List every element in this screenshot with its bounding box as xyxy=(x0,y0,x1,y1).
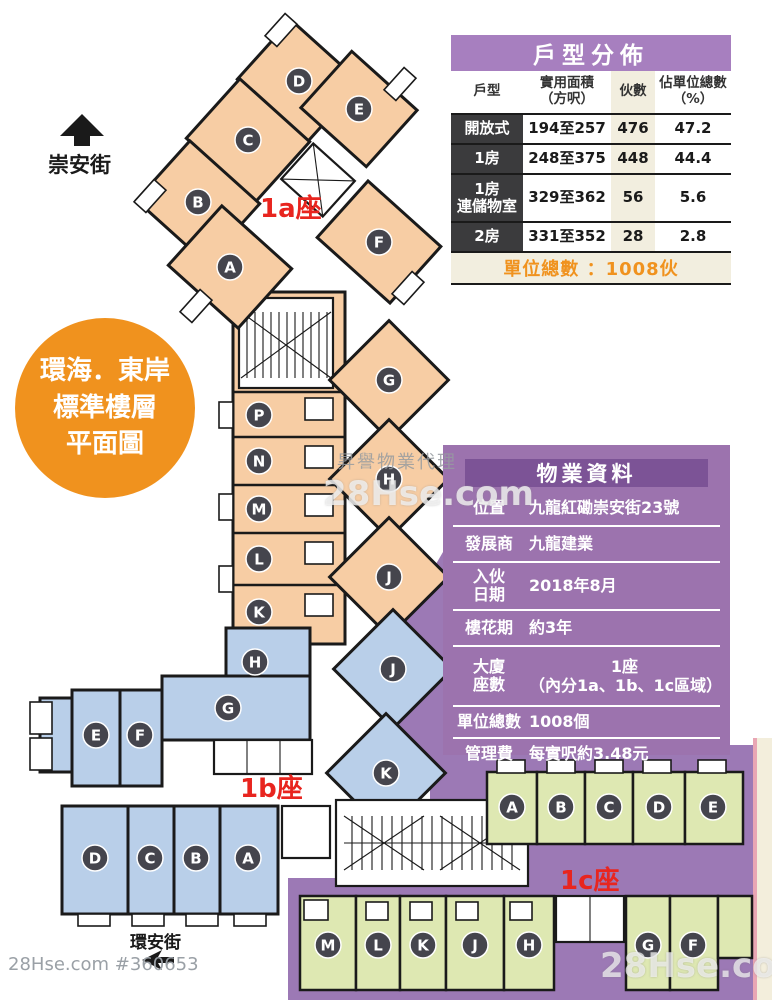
unit-table-header: 戶型 實用面積 （方呎） 伙數 佔單位總數 （%） xyxy=(451,71,731,113)
street-bottom-label: 環安街 xyxy=(130,932,181,953)
svg-text:B: B xyxy=(192,194,203,212)
svg-text:B: B xyxy=(555,799,566,817)
unit-distribution-table: 戶型分佈 戶型 實用面積 （方呎） 伙數 佔單位總數 （%） 開放式 194至2… xyxy=(451,35,731,285)
unit-marker: L xyxy=(246,546,272,572)
svg-text:J: J xyxy=(471,937,478,955)
unit-table-total: 單位總數 ：1008伙 xyxy=(451,251,731,285)
unit-marker: D xyxy=(286,68,312,94)
wing-1b-label: 1b座 xyxy=(240,773,303,804)
unit-marker: F xyxy=(127,722,153,748)
property-row: 單位總數 1008個 xyxy=(453,707,720,739)
svg-text:M: M xyxy=(252,501,267,519)
unit-marker: G xyxy=(376,367,402,393)
unit-marker: B xyxy=(185,189,211,215)
col-header-area: 實用面積 （方呎） xyxy=(523,71,611,113)
unit-marker: L xyxy=(365,932,391,958)
wing-1c-label: 1c座 xyxy=(560,865,620,896)
property-row: 發展商 九龍建業 xyxy=(453,527,720,563)
lift-bank-1c xyxy=(556,896,624,942)
svg-text:J: J xyxy=(389,661,396,679)
svg-text:C: C xyxy=(242,132,253,150)
unit-marker: H xyxy=(242,649,268,675)
svg-text:K: K xyxy=(253,604,266,622)
table-row: 開放式 194至257 476 47.2 xyxy=(451,113,731,143)
unit-marker: A xyxy=(499,794,525,820)
unit-marker: D xyxy=(646,794,672,820)
street-arrow-icon xyxy=(142,950,174,970)
street-bottom: 環安街 xyxy=(130,932,181,970)
property-row: 管理費 每實呎約3.48元 xyxy=(453,739,720,769)
property-row: 大廈 座數 1座 （內分1a、1b、1c區域） xyxy=(453,647,720,707)
svg-text:P: P xyxy=(254,407,265,425)
property-row: 位置 九龍紅磡崇安街23號 xyxy=(453,491,720,527)
unit-marker: C xyxy=(137,845,163,871)
svg-text:B: B xyxy=(190,850,201,868)
unit-marker: H xyxy=(516,932,542,958)
svg-text:K: K xyxy=(380,765,393,783)
svg-text:A: A xyxy=(506,799,518,817)
unit-marker: F xyxy=(680,932,706,958)
unit-marker: B xyxy=(183,845,209,871)
property-row: 樓花期 約3年 xyxy=(453,611,720,647)
unit-table-title: 戶型分佈 xyxy=(451,35,731,71)
unit-marker: N xyxy=(246,448,272,474)
svg-text:G: G xyxy=(642,937,654,955)
street-top-label: 崇安街 xyxy=(48,153,111,177)
unit-marker: C xyxy=(596,794,622,820)
unit-marker: F xyxy=(366,229,392,255)
svg-text:J: J xyxy=(385,569,392,587)
svg-text:C: C xyxy=(144,850,155,868)
svg-text:G: G xyxy=(383,372,395,390)
svg-text:F: F xyxy=(688,937,698,955)
table-row: 2房 331至352 28 2.8 xyxy=(451,221,731,251)
unit-marker: H xyxy=(376,466,402,492)
svg-text:A: A xyxy=(224,259,236,277)
svg-text:E: E xyxy=(354,101,364,119)
svg-text:L: L xyxy=(254,551,264,569)
unit-marker: K xyxy=(246,599,272,625)
property-row: 入伙 日期 2018年8月 xyxy=(453,563,720,611)
svg-text:L: L xyxy=(373,937,383,955)
svg-text:A: A xyxy=(242,850,254,868)
svg-text:D: D xyxy=(89,850,101,868)
north-arrow-icon xyxy=(60,114,104,146)
svg-text:N: N xyxy=(253,453,266,471)
svg-text:D: D xyxy=(653,799,665,817)
col-header-share: 佔單位總數 （%） xyxy=(655,71,731,113)
svg-text:E: E xyxy=(91,727,101,745)
unit-marker: E xyxy=(83,722,109,748)
unit-marker: M xyxy=(246,496,272,522)
svg-text:C: C xyxy=(603,799,614,817)
svg-text:E: E xyxy=(708,799,718,817)
unit-marker: B xyxy=(548,794,574,820)
svg-text:F: F xyxy=(374,234,384,252)
svg-text:H: H xyxy=(383,471,396,489)
svg-text:H: H xyxy=(249,654,262,672)
unit-marker: E xyxy=(346,96,372,122)
svg-text:M: M xyxy=(321,937,336,955)
badge-line-1: 環海．東岸 xyxy=(15,353,195,390)
corridor-block xyxy=(219,292,345,644)
unit-marker: D xyxy=(82,845,108,871)
street-top: 崇安街 xyxy=(48,114,111,177)
unit-marker: G xyxy=(215,695,241,721)
svg-text:H: H xyxy=(523,937,536,955)
wing-1a xyxy=(134,13,441,328)
unit-marker: A xyxy=(235,845,261,871)
property-table-title: 物業資料 xyxy=(465,459,708,487)
svg-text:G: G xyxy=(222,700,234,718)
col-header-type: 戶型 xyxy=(451,71,523,113)
lift-bank-1b xyxy=(214,740,312,774)
unit-marker: K xyxy=(373,760,399,786)
col-header-count: 伙數 xyxy=(611,71,655,113)
wing-1a-label: 1a座 xyxy=(260,193,322,224)
unit-marker: M xyxy=(315,932,341,958)
property-info-table: 物業資料 位置 九龍紅磡崇安街23號 發展商 九龍建業 入伙 日期 2018年8… xyxy=(443,445,730,755)
badge-line-3: 平面圖 xyxy=(15,426,195,463)
table-row: 1房 連儲物室 329至362 56 5.6 xyxy=(451,173,731,221)
badge-line-2: 標準樓層 xyxy=(15,390,195,427)
floorplan-page: D E C B A F P N M L K G H J H G E F D C … xyxy=(0,0,772,1000)
unit-marker: J xyxy=(376,564,402,590)
svg-text:K: K xyxy=(417,937,430,955)
project-badge: 環海．東岸 標準樓層 平面圖 xyxy=(15,318,195,498)
svg-text:F: F xyxy=(135,727,145,745)
unit-marker: E xyxy=(700,794,726,820)
unit-marker: J xyxy=(462,932,488,958)
table-row: 1房 248至375 448 44.4 xyxy=(451,143,731,173)
unit-marker: C xyxy=(235,127,261,153)
unit-marker: A xyxy=(217,254,243,280)
unit-marker: G xyxy=(635,932,661,958)
unit-marker: J xyxy=(380,656,406,682)
svg-text:D: D xyxy=(293,73,305,91)
unit-marker: P xyxy=(246,402,272,428)
unit-marker: K xyxy=(410,932,436,958)
